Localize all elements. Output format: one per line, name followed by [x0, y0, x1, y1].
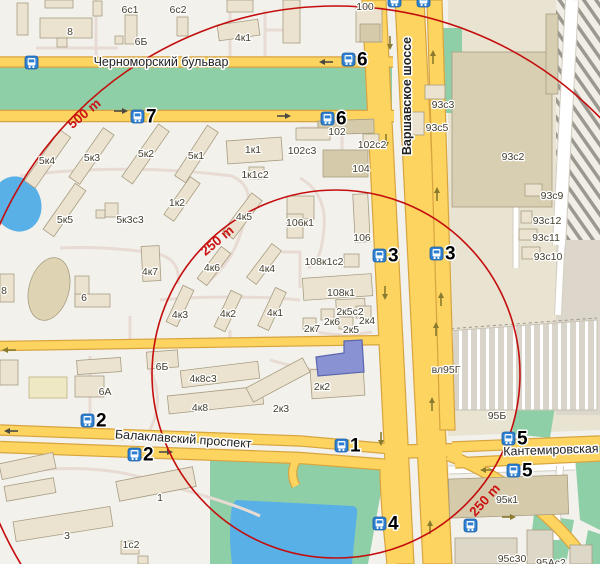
building-label: 2к6: [324, 316, 340, 328]
building: [17, 3, 28, 35]
building-label: 93с11: [532, 232, 560, 244]
building-label: 6: [81, 292, 87, 304]
building-label: 93с3: [432, 99, 455, 111]
building-label: 108к1с2: [304, 256, 343, 268]
building: [525, 184, 542, 196]
pond: [230, 500, 357, 564]
building: [115, 36, 123, 44]
building: [96, 210, 105, 218]
building-label: 5к4: [39, 155, 55, 167]
bus-stop-number[interactable]: 5: [522, 461, 533, 482]
building: [93, 1, 102, 16]
building: [283, 0, 300, 43]
building-label: 95к1: [496, 494, 518, 506]
building-label: 4к3: [172, 309, 188, 321]
bus-stop-marker[interactable]: [502, 432, 515, 445]
bus-stop-marker[interactable]: [388, 0, 401, 7]
building-label: 4к1: [235, 32, 251, 44]
building: [570, 545, 592, 564]
building-label: 95Ас2: [536, 557, 566, 564]
building-label: вл95Г: [432, 364, 461, 376]
building-label: 6Б: [135, 36, 148, 48]
bus-stop-marker[interactable]: [464, 519, 477, 532]
bus-stop-number[interactable]: 4: [388, 514, 399, 535]
building-label: 2к7: [304, 323, 320, 335]
building-label: 1с2: [123, 539, 140, 551]
building: [45, 0, 73, 8]
bus-stop-marker[interactable]: [342, 53, 355, 66]
building: [546, 14, 558, 94]
building-label: 2к3: [273, 403, 289, 415]
building-label: 100: [356, 1, 374, 13]
building-label: 1к1с2: [241, 169, 269, 181]
building: [425, 85, 445, 99]
building-label: 4к8: [192, 402, 208, 414]
building-label: 1к1: [245, 144, 261, 156]
building-label: 102с2: [358, 139, 387, 151]
building: [77, 357, 122, 374]
building: [177, 17, 188, 36]
building-label: 93с10: [534, 251, 563, 263]
building: [521, 211, 532, 223]
building-label: 104: [352, 163, 370, 175]
bus-stop-marker[interactable]: [25, 56, 38, 69]
bus-stop-marker[interactable]: [507, 464, 520, 477]
bus-stop-number[interactable]: 6: [357, 50, 368, 71]
building-label: 5к2: [138, 148, 154, 160]
building: [360, 24, 380, 42]
building: [227, 0, 253, 12]
bus-stop-number[interactable]: 1: [350, 436, 361, 457]
bus-stop-number[interactable]: 2: [96, 411, 107, 432]
building: [57, 38, 67, 47]
building-label: 4к1: [267, 307, 283, 319]
bus-stop-marker[interactable]: [417, 0, 430, 7]
building-label: 95с30: [498, 553, 527, 564]
bus-stop-marker[interactable]: [321, 112, 334, 125]
map-canvas[interactable]: Черноморский бульварВаршавское шоссеБала…: [0, 0, 600, 564]
building: [40, 18, 92, 38]
building-label: 4к5: [236, 211, 252, 223]
building-label: 5к3: [84, 152, 100, 164]
bus-stop-number[interactable]: 7: [146, 107, 157, 128]
building-label: 93с5: [426, 122, 449, 134]
bus-stop-marker[interactable]: [430, 247, 443, 260]
park-area: [0, 67, 392, 111]
bus-stop-marker[interactable]: [131, 110, 144, 123]
building-label: 102с3: [288, 145, 317, 157]
street-label: Черноморский бульвар: [94, 55, 229, 69]
building-label: 6с1: [122, 4, 139, 16]
bus-stop-marker[interactable]: [373, 517, 386, 530]
building: [0, 360, 18, 385]
building-label: 93с9: [541, 190, 564, 202]
building-label: 95Б: [488, 410, 507, 422]
building-label: 3: [64, 530, 70, 542]
building-label: 93с12: [533, 215, 562, 227]
bus-stop-marker[interactable]: [128, 448, 141, 461]
bus-stop-marker[interactable]: [335, 439, 348, 452]
building: [138, 556, 148, 564]
building-label: 4к6: [204, 262, 220, 274]
building-label: 2к5: [343, 324, 359, 336]
bus-stop-marker[interactable]: [373, 249, 386, 262]
bus-stop-marker[interactable]: [81, 414, 94, 427]
building: [344, 254, 359, 267]
bus-stop-number[interactable]: 3: [445, 244, 456, 265]
building-label: 2к2: [314, 381, 330, 393]
building-label: 4к7: [142, 266, 158, 278]
building-label: 4к8с3: [189, 373, 217, 385]
building-label: 6А: [99, 386, 112, 398]
map-svg[interactable]: Черноморский бульварВаршавское шоссеБала…: [0, 0, 600, 564]
building-label: 5к5: [57, 214, 73, 226]
building-label: 8: [67, 26, 73, 38]
building-label: 106к1: [286, 217, 314, 229]
building-label: 6Б: [156, 361, 169, 373]
building-label: 2к4: [359, 315, 375, 327]
bus-stop-number[interactable]: 3: [388, 246, 399, 267]
bus-stop-number[interactable]: 6: [336, 109, 347, 130]
building-label: 8: [1, 285, 7, 297]
building-label: 4к4: [259, 263, 275, 275]
bus-stop-number[interactable]: 5: [517, 429, 528, 450]
building-label: 5к3с3: [116, 214, 144, 226]
building: [296, 128, 330, 140]
sports-field: [29, 377, 67, 398]
building-label: 1к2: [169, 197, 185, 209]
building-label: 5к1: [188, 150, 204, 162]
building-label: 6с2: [170, 4, 187, 16]
street-label: Варшавское шоссе: [400, 37, 414, 155]
bus-stop-number[interactable]: 2: [143, 445, 154, 466]
building-label: 106: [353, 232, 371, 244]
building-label: 93с2: [502, 151, 525, 163]
building-label: 1: [157, 492, 163, 504]
building-label: 108к1: [327, 287, 355, 299]
building-label: 4к2: [220, 308, 236, 320]
